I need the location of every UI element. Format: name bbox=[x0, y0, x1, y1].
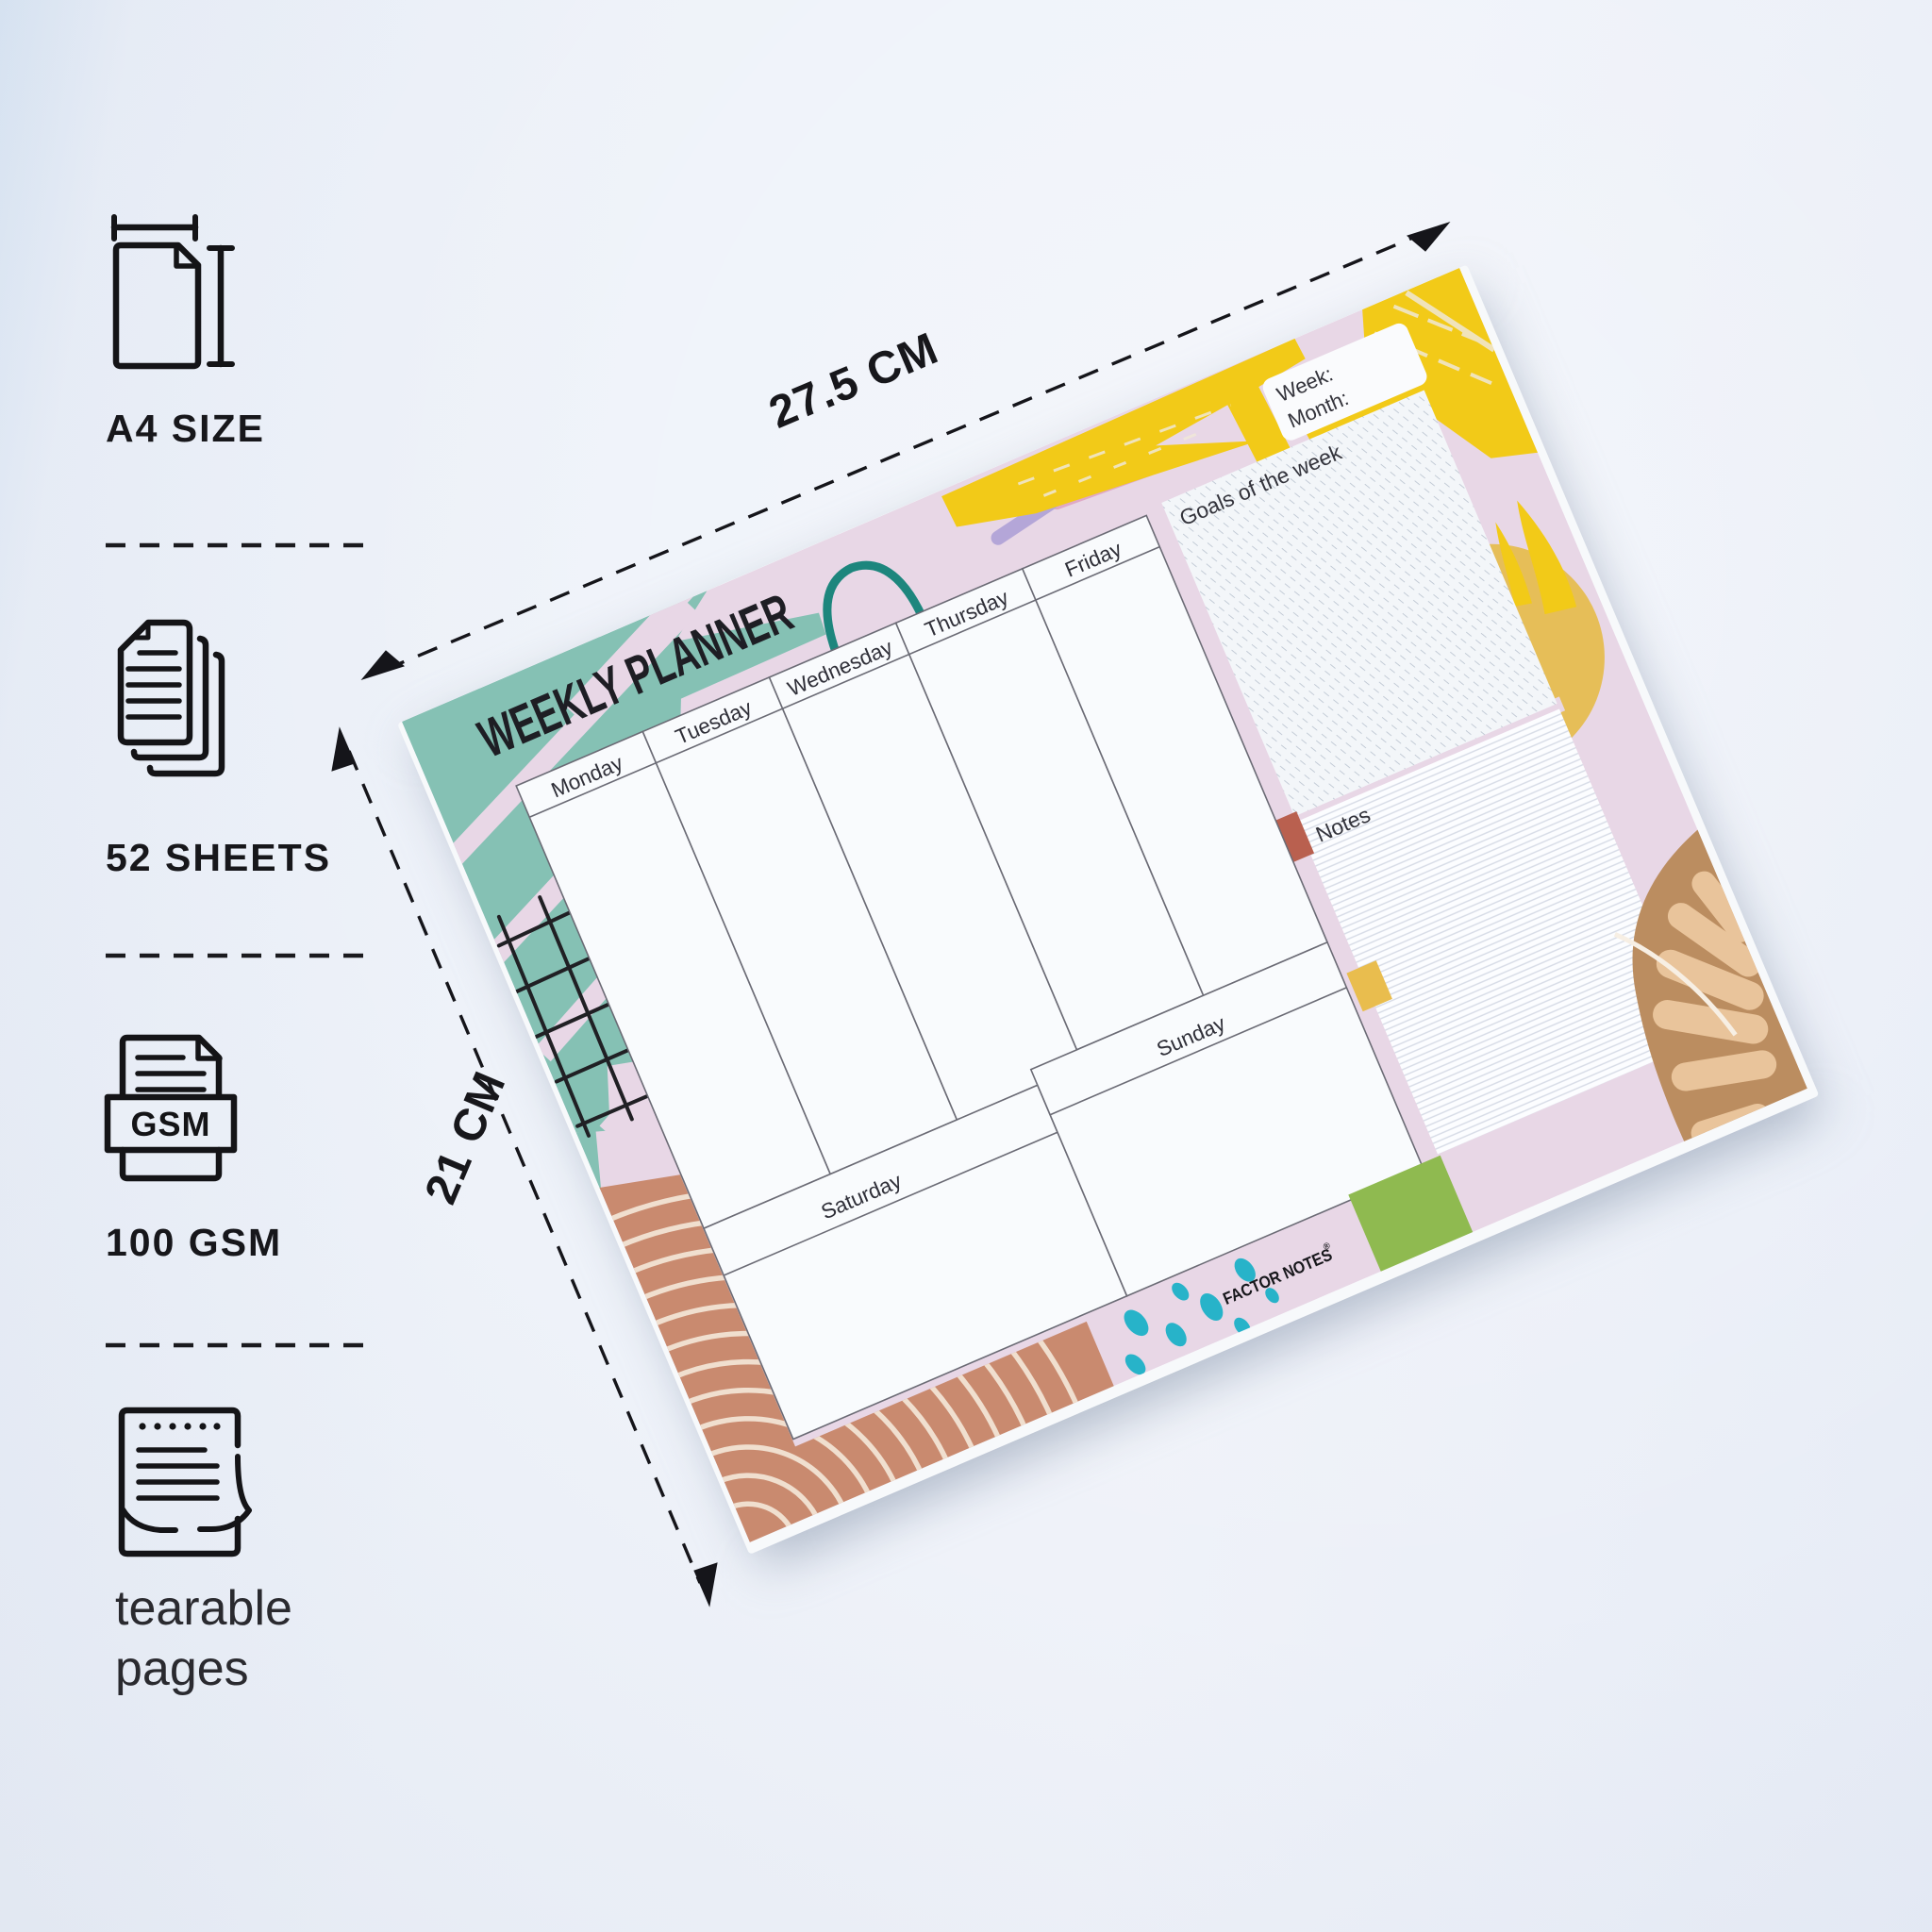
svg-text:27.5 CM: 27.5 CM bbox=[762, 324, 945, 439]
svg-text:21 CM: 21 CM bbox=[416, 1064, 516, 1210]
